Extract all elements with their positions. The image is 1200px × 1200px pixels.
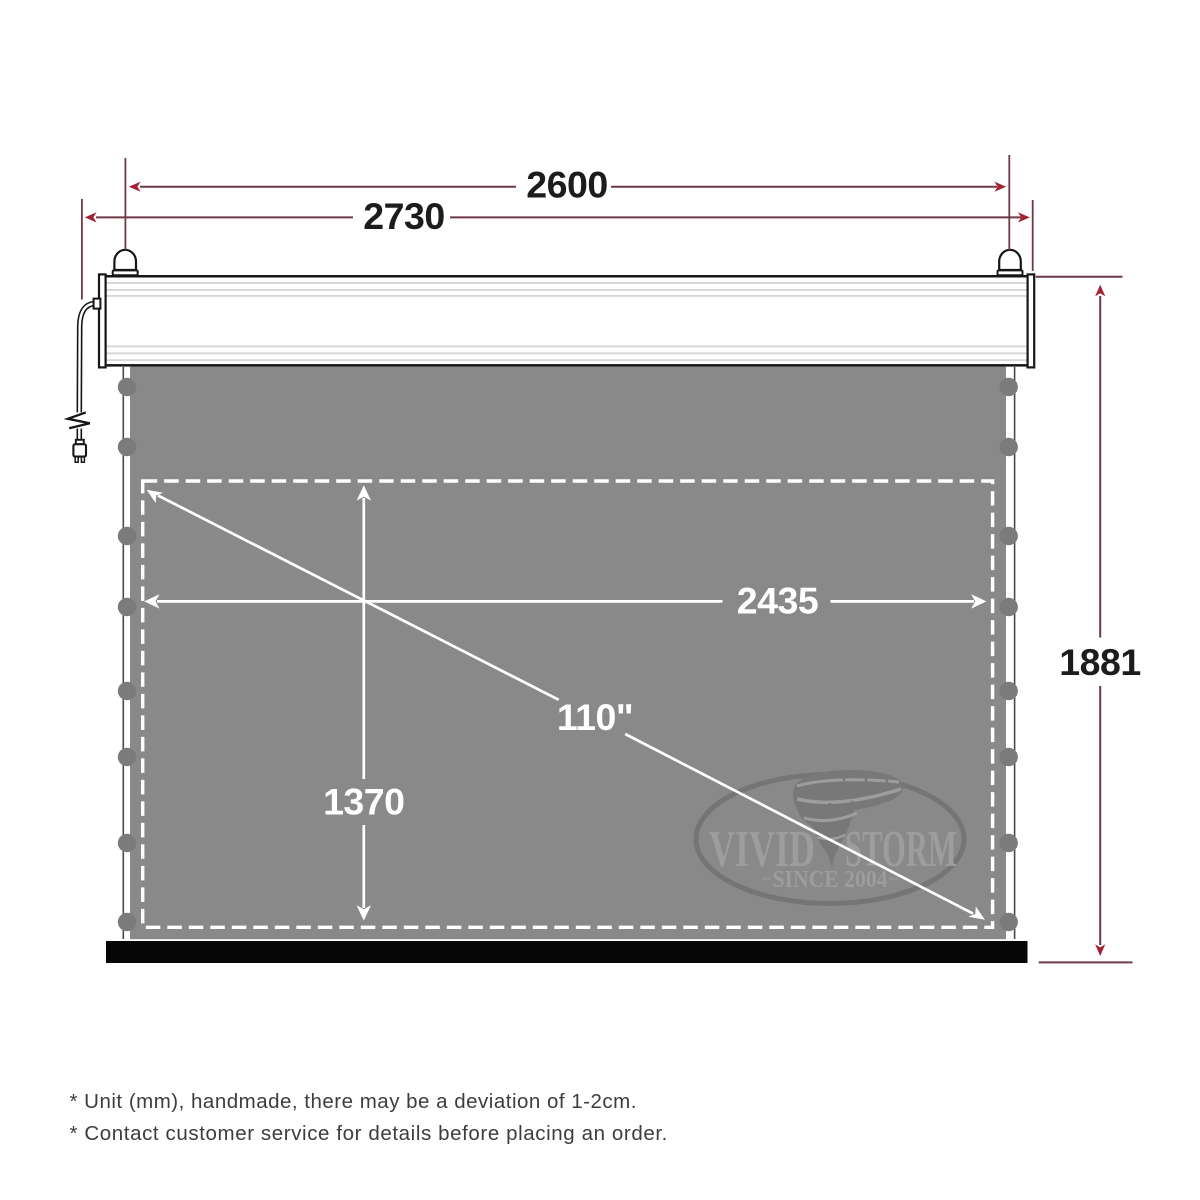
svg-text:SINCE 2004: SINCE 2004 <box>773 867 888 893</box>
svg-text:* Unit (mm), handmade, there m: * Unit (mm), handmade, there may be a de… <box>70 1090 637 1113</box>
svg-text:* Contact customer service for: * Contact customer service for details b… <box>70 1122 668 1145</box>
svg-text:2435: 2435 <box>737 580 818 622</box>
svg-text:110": 110" <box>557 696 633 738</box>
svg-text:2730: 2730 <box>363 195 444 237</box>
svg-text:2600: 2600 <box>526 164 607 206</box>
svg-text:1881: 1881 <box>1059 641 1140 683</box>
svg-text:1370: 1370 <box>323 781 404 823</box>
